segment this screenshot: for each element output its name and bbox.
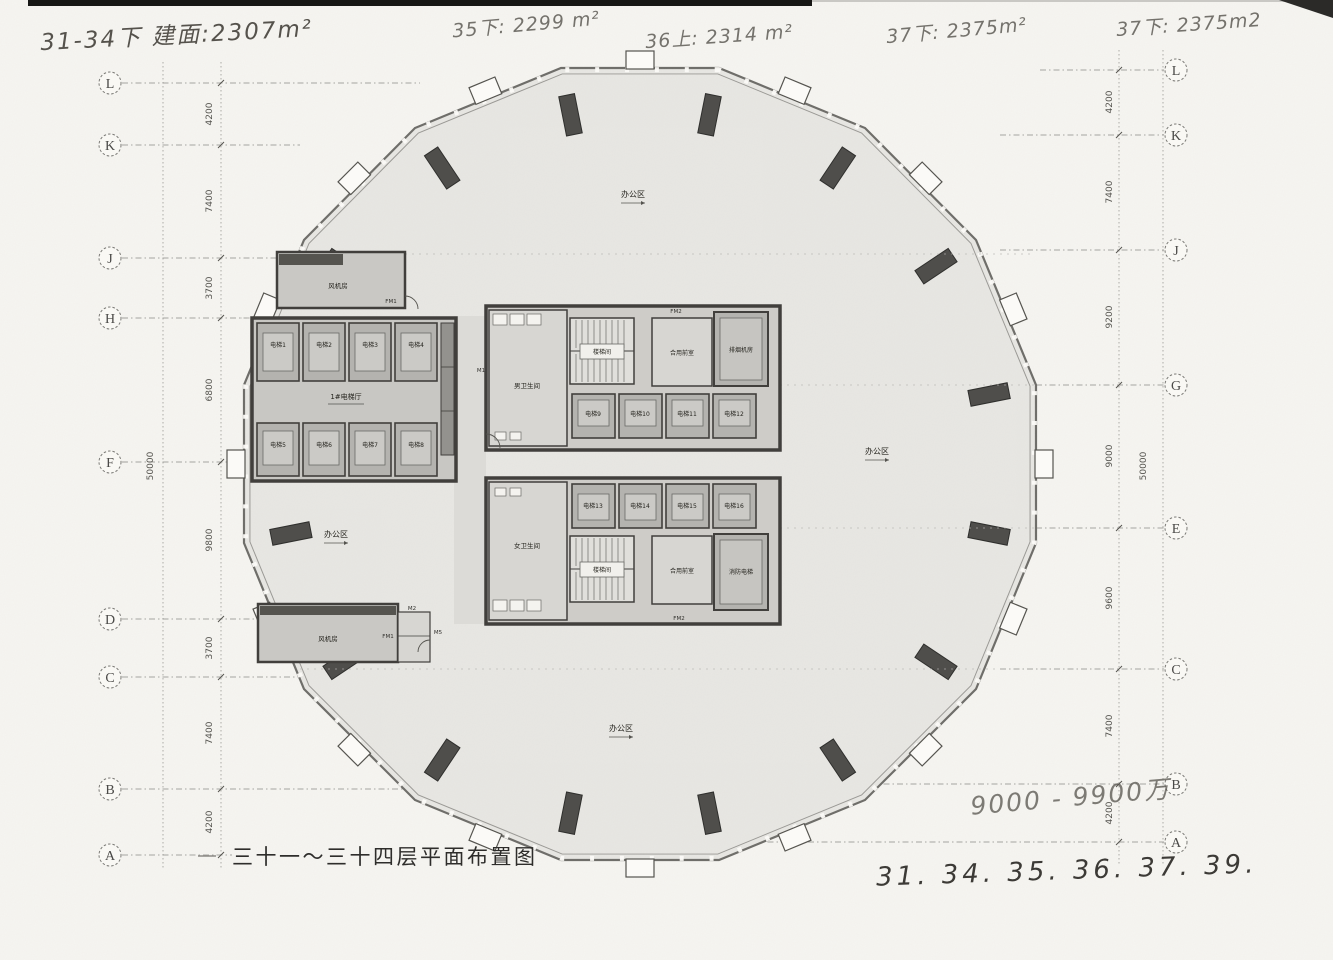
- dim-label: 9800: [205, 528, 215, 551]
- core-block-upper: 男卫生间 M1 楼梯间: [477, 306, 780, 450]
- office-label: 办公区: [609, 723, 633, 739]
- grid-letter: C: [1171, 663, 1180, 678]
- grid-letter: L: [1172, 64, 1181, 79]
- grid-bubble: D: [99, 608, 121, 630]
- door-label-fm1: FM1: [382, 634, 393, 640]
- elevator-cell: 电梯8: [395, 423, 437, 476]
- grid-bubble: C: [99, 666, 121, 688]
- grid-bubble: A: [99, 844, 121, 866]
- service-shaft: [441, 323, 454, 455]
- grid-letter: K: [105, 139, 115, 154]
- elevator-cell: 电梯6: [303, 423, 345, 476]
- scan-artifact-top-line: [812, 0, 1290, 2]
- core-corridor: [454, 316, 486, 624]
- svg-text:电梯9: 电梯9: [585, 410, 601, 418]
- room-label-womens-wc: 女卫生间: [514, 541, 540, 550]
- svg-text:电梯8: 电梯8: [408, 441, 424, 449]
- grid-bubble: L: [99, 72, 121, 94]
- grid-bubble: J: [99, 247, 121, 269]
- svg-text:电梯5: 电梯5: [270, 441, 286, 449]
- door-label-m2: M2: [408, 606, 416, 612]
- column-box: [626, 859, 654, 877]
- grid-bubble: B: [99, 778, 121, 800]
- room-label-vestibule: 合用前室: [670, 349, 694, 357]
- grid-letter: A: [1171, 836, 1182, 851]
- door-label-m5: M5: [434, 630, 443, 636]
- room-label-stair: 楼梯间: [593, 566, 611, 574]
- dim-label: 6800: [205, 378, 215, 401]
- elevator-cell: 电梯11: [666, 394, 709, 438]
- room-label-fan-room: 风机房: [318, 634, 338, 643]
- stairwell-upper: 楼梯间: [570, 318, 634, 384]
- grid-bubble: K: [1165, 124, 1187, 146]
- dim-label: 9200: [1105, 305, 1115, 328]
- svg-text:办公区: 办公区: [865, 446, 889, 456]
- room-label-stair: 楼梯间: [593, 348, 611, 356]
- grid-bubble: G: [1165, 374, 1187, 396]
- grid-bubble: L: [1165, 59, 1187, 81]
- svg-text:电梯6: 电梯6: [316, 441, 332, 449]
- grid-letter: G: [1171, 379, 1181, 394]
- svg-text:电梯11: 电梯11: [677, 410, 697, 418]
- dim-label: 9600: [1105, 586, 1115, 609]
- grid-letter: L: [106, 77, 115, 92]
- svg-text:电梯10: 电梯10: [630, 410, 650, 418]
- grid-letter: B: [105, 783, 114, 798]
- dim-label: 4200: [205, 102, 215, 125]
- grid-bubble: K: [99, 134, 121, 156]
- svg-text:电梯16: 电梯16: [724, 502, 744, 510]
- grid-letter: J: [107, 252, 113, 267]
- svg-text:电梯13: 电梯13: [583, 502, 603, 510]
- dim-label: 7400: [1105, 180, 1115, 203]
- grid-letter: B: [1171, 778, 1180, 793]
- elevator-cell: 电梯12: [713, 394, 756, 438]
- elevator-cell: 电梯1: [257, 323, 299, 381]
- svg-text:办公区: 办公区: [609, 723, 633, 733]
- svg-text:办公区: 办公区: [621, 189, 645, 199]
- grid-bubble: F: [99, 451, 121, 473]
- grid-letter: K: [1171, 129, 1181, 144]
- room-label-mens-wc: 男卫生间: [514, 381, 540, 390]
- dim-label: 7400: [205, 721, 215, 744]
- core-annex-rooms: [398, 612, 430, 662]
- office-label: 办公区: [621, 189, 645, 205]
- door-label-fm2: FM2: [670, 309, 681, 315]
- dim-total-label: 50000: [1139, 451, 1149, 480]
- elevator-cell: 电梯3: [349, 323, 391, 381]
- dim-total-label: 50000: [146, 451, 156, 480]
- svg-text:电梯14: 电梯14: [630, 502, 650, 510]
- dim-label: 9000: [1105, 444, 1115, 467]
- fan-room-top: 风机房 FM1: [277, 252, 418, 309]
- grid-bubble: J: [1165, 239, 1187, 261]
- dim-label: 3700: [205, 276, 215, 299]
- svg-text:电梯4: 电梯4: [408, 341, 424, 349]
- column-box: [1035, 450, 1053, 478]
- grid-letter: C: [105, 671, 114, 686]
- elevator-cell: 电梯2: [303, 323, 345, 381]
- dim-label: 3700: [205, 636, 215, 659]
- svg-text:电梯1: 电梯1: [270, 341, 286, 349]
- core-block-lower: 电梯13 电梯14 电梯15 电梯16 女卫生间: [486, 478, 780, 624]
- grid-bubble: A: [1165, 831, 1187, 853]
- elevator-cell: 电梯7: [349, 423, 391, 476]
- grid-letter: A: [105, 849, 116, 864]
- scan-artifact-top-strip: [28, 0, 812, 6]
- room-label-fire-elevator: 消防电梯: [729, 568, 753, 576]
- grid-letter: E: [1172, 522, 1181, 537]
- column-box: [227, 450, 245, 478]
- elevator-cell: 电梯16: [713, 484, 756, 528]
- drawing-title: 三十一～三十四层平面布置图: [232, 841, 538, 871]
- elevator-cell: 电梯10: [619, 394, 662, 438]
- dim-label: 4200: [205, 810, 215, 833]
- svg-text:电梯3: 电梯3: [362, 341, 378, 349]
- room-label-fan-room: 风机房: [328, 281, 348, 290]
- elevator-cell: 电梯4: [395, 323, 437, 381]
- svg-text:电梯7: 电梯7: [362, 441, 378, 449]
- elevator-cell: 电梯15: [666, 484, 709, 528]
- fan-room-bottom: 风机房 FM1 M2 M5: [258, 604, 443, 662]
- room-label-vestibule: 合用前室: [670, 567, 694, 575]
- grid-bubble: H: [99, 307, 121, 329]
- svg-text:电梯15: 电梯15: [677, 502, 697, 510]
- elevator-cell: 电梯9: [572, 394, 615, 438]
- door-label-fm1: FM1: [385, 299, 396, 305]
- dim-label: 4200: [1105, 90, 1115, 113]
- mens-wc-room: [489, 310, 567, 446]
- room-label-elevator-hall: 1#电梯厅: [330, 392, 361, 401]
- grid-letter: J: [1173, 244, 1179, 259]
- grid-bubble: C: [1165, 658, 1187, 680]
- office-label: 办公区: [324, 529, 348, 545]
- dim-label: 7400: [1105, 714, 1115, 737]
- grid-letter: F: [106, 456, 114, 471]
- grid-letter: H: [105, 312, 115, 327]
- door-label-fm2: FM2: [673, 616, 684, 622]
- svg-text:电梯2: 电梯2: [316, 341, 332, 349]
- stairwell-lower: 楼梯间: [570, 536, 634, 602]
- dim-label: 7400: [205, 189, 215, 212]
- womens-wc-room: [489, 482, 567, 620]
- door-label-m1: M1: [477, 368, 485, 374]
- floorplan-drawing: L K J H F D C B A 4200 7400 3700 6: [0, 0, 1333, 960]
- grid-bubble: E: [1165, 517, 1187, 539]
- elevator-cell: 电梯14: [619, 484, 662, 528]
- elevator-bank-left: 电梯1 电梯2 电梯3 电梯4 1#电梯厅: [252, 318, 456, 481]
- elevator-cell: 电梯5: [257, 423, 299, 476]
- grid-letter: D: [105, 613, 115, 628]
- svg-text:办公区: 办公区: [324, 529, 348, 539]
- office-label: 办公区: [865, 446, 889, 462]
- elevator-cell: 电梯13: [572, 484, 615, 528]
- svg-text:电梯12: 电梯12: [724, 410, 744, 418]
- room-label-smoke-room: 排烟机房: [729, 346, 753, 354]
